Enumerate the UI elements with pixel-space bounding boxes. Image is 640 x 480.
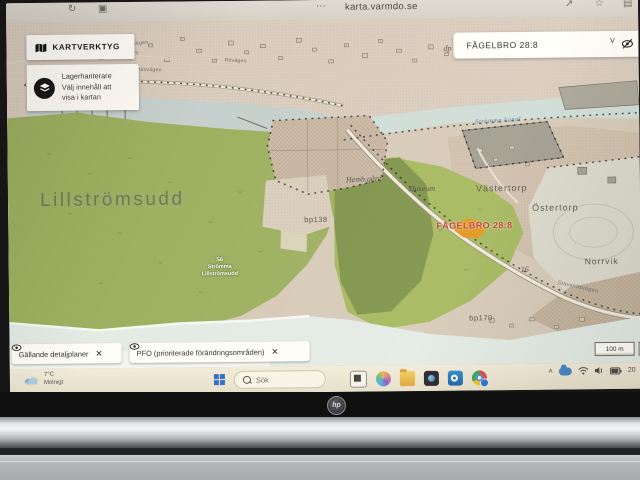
address-bar[interactable]: karta.varmdo.se	[345, 1, 418, 13]
laptop-hinge	[0, 417, 640, 448]
map-icon	[35, 42, 46, 52]
search-value: FÅGELBRO 28:8	[466, 40, 538, 51]
taskbar-search-label: Sök	[256, 375, 269, 384]
chrome-icon[interactable]	[472, 370, 487, 385]
label-vastertorp: Västertorp	[476, 184, 528, 194]
label-hembgard: Hemb.gård	[346, 175, 382, 185]
windows-taskbar: 7°C Molnigt Sök ˄	[10, 363, 640, 396]
label-bp170: bp170	[469, 314, 492, 322]
search-icon	[243, 376, 251, 384]
more-icon[interactable]: ⋯	[316, 1, 326, 12]
battery-icon[interactable]	[610, 366, 622, 374]
eye-icon	[130, 343, 140, 350]
weather-temp: 7°C	[44, 372, 63, 380]
search-input[interactable]: FÅGELBRO 28:8 ˅	[453, 31, 638, 59]
chip-pfo[interactable]: PFO (prioriterade förändringsområden) ✕	[130, 341, 310, 363]
volume-icon[interactable]	[595, 366, 604, 375]
file-explorer-icon[interactable]	[400, 371, 415, 386]
label-ostertorp: Östertorp	[532, 203, 579, 212]
close-icon[interactable]: ✕	[271, 346, 278, 357]
wifi-icon[interactable]	[578, 366, 589, 375]
label-bp138: bp138	[304, 216, 327, 224]
laptop-screen: ↻ ▣ ⋯ karta.varmdo.se ↗ ☆ ▤	[6, 0, 640, 395]
layer-panel-line1: Välj innehåll att	[62, 82, 112, 93]
label-dp: dp	[443, 45, 451, 53]
chip-detaljplaner[interactable]: Gällande detaljplaner ✕	[12, 343, 122, 364]
label-lillstromsudd: Lillströmsudd	[40, 189, 185, 210]
weather-condition: Molnigt	[44, 380, 63, 388]
hp-logo: hp	[327, 396, 346, 415]
label-selected-property: FÅGELBRO 28:8	[436, 221, 512, 231]
layer-panel-title: Lagerhanterare	[62, 71, 112, 82]
layers-icon	[34, 77, 55, 98]
tray-chevron-up-icon[interactable]: ˄	[548, 367, 553, 376]
cloud-icon	[24, 375, 39, 385]
chevron-down-icon[interactable]: ˅	[609, 36, 615, 47]
scale-bar: 100 m	[595, 342, 635, 356]
copilot-icon[interactable]	[376, 371, 391, 386]
label-museum: Museum	[408, 185, 435, 193]
share-icon[interactable]: ↗	[565, 0, 574, 9]
eye-icon	[12, 344, 22, 351]
taskbar-search[interactable]: Sök	[234, 370, 326, 389]
close-icon[interactable]: ✕	[95, 348, 102, 359]
photos-app-icon[interactable]	[424, 371, 439, 386]
side-panel-icon[interactable]: ▤	[623, 0, 633, 9]
laptop-bezel	[0, 392, 640, 417]
label-rovagen: Rövägen	[224, 58, 246, 64]
onedrive-icon[interactable]	[559, 367, 572, 375]
layer-manager-panel[interactable]: Lagerhanterare Välj innehåll att visa i …	[27, 64, 139, 111]
bookmark-star-icon[interactable]: ☆	[595, 0, 604, 9]
label-parcel-16: 16	[521, 266, 529, 274]
tabs-icon[interactable]: ▣	[98, 3, 108, 14]
layer-panel-line2: visa i kartan	[62, 92, 112, 103]
label-norrvik: Norrvik	[585, 257, 619, 266]
hide-results-icon[interactable]	[621, 38, 633, 50]
laptop-deck	[0, 455, 640, 480]
task-view-icon[interactable]	[350, 371, 367, 388]
kartverktyg-button[interactable]: KARTVERKTYG	[26, 34, 134, 60]
windows-start-button[interactable]	[214, 374, 225, 385]
taskbar-app-icons	[350, 369, 487, 387]
hinge-shadow	[0, 448, 640, 455]
taskbar-clock[interactable]: 20	[628, 367, 638, 374]
system-tray: ˄ 20	[548, 366, 638, 376]
outlook-icon[interactable]	[448, 371, 463, 386]
weather-widget[interactable]: 7°C Molnigt	[24, 372, 64, 388]
label-s6-stromma: S6 Strömma Lillströmsudd	[185, 257, 255, 278]
reload-icon[interactable]: ↻	[68, 4, 77, 15]
